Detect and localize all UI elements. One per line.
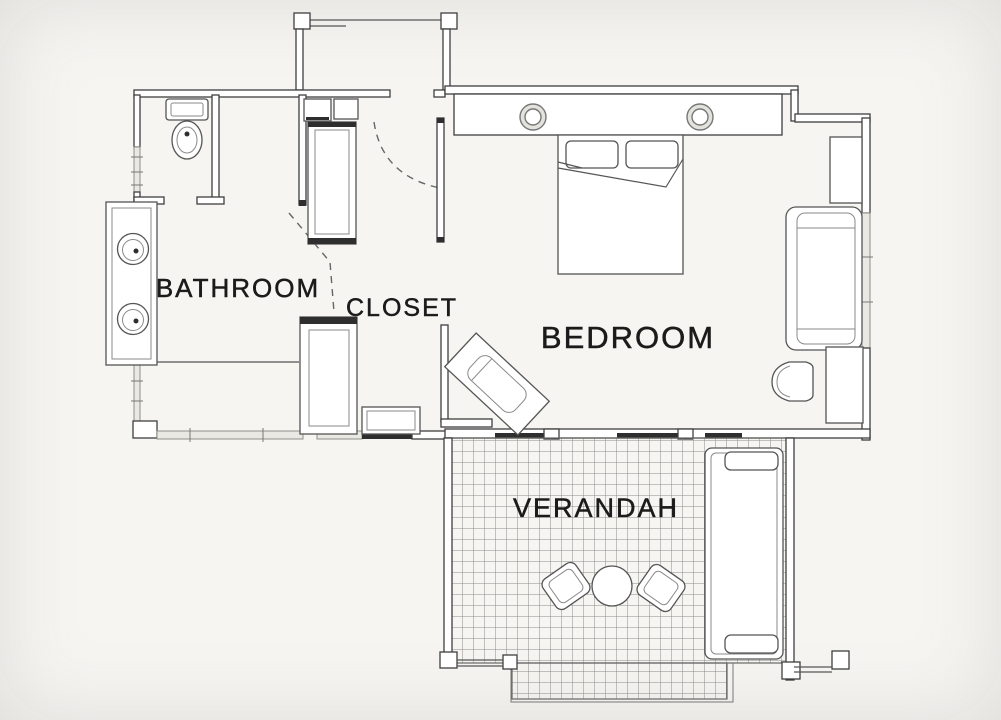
porch-wall (443, 29, 450, 90)
closet-bench (362, 407, 420, 434)
window (157, 431, 303, 439)
verandah-label: VERANDAH (513, 493, 679, 523)
deck-edge (444, 438, 452, 655)
deck-post (440, 652, 457, 668)
deck-post (782, 662, 800, 679)
north-wall-east (795, 114, 870, 122)
sink (118, 234, 149, 265)
window (862, 213, 870, 348)
headboard-sconce (687, 104, 713, 130)
west-wall (134, 95, 140, 147)
west-wall-lower (441, 325, 448, 422)
deck-post (503, 655, 517, 669)
verandah-area (440, 438, 849, 702)
side-table (830, 137, 862, 203)
sink (118, 304, 149, 335)
floor-plan-drawing: BATHROOM CLOSET BEDROOM VERANDAH (0, 0, 1001, 720)
north-wall (445, 86, 798, 94)
vanity (106, 202, 157, 365)
pillow (626, 141, 678, 168)
porch-post (441, 13, 457, 29)
bathroom-fixtures (106, 99, 208, 365)
side-table (826, 347, 863, 423)
sliding-door-panel (705, 433, 742, 438)
west-wall-foot (441, 419, 492, 427)
deck-post (832, 651, 849, 669)
bedroom-label: BEDROOM (541, 320, 715, 355)
north-wall-stub (434, 90, 445, 97)
sliding-door-panel (617, 433, 679, 438)
sofa (786, 207, 862, 350)
deck-step (512, 663, 727, 699)
lower-wardrobe (300, 317, 357, 434)
headboard-shelf (454, 94, 782, 135)
headboard-sconce (520, 104, 546, 130)
porch-post (294, 13, 310, 29)
closet-furniture (300, 99, 420, 434)
entry-porch (294, 13, 457, 90)
wc-wall (197, 197, 224, 204)
lounger-pillow (725, 635, 778, 653)
armchair (772, 362, 813, 401)
east-wall (862, 118, 870, 213)
entry-door-swing (374, 122, 440, 188)
bedroom-furniture (445, 94, 863, 435)
lounger-pillow (725, 452, 778, 470)
floor-plan: BATHROOM CLOSET BEDROOM VERANDAH (0, 0, 1001, 720)
wc-wall (212, 95, 219, 199)
porch-wall (296, 29, 303, 90)
pillow (566, 141, 618, 168)
toilet (166, 99, 208, 159)
bathroom-label: BATHROOM (156, 273, 320, 303)
closet-cabinet (334, 99, 358, 119)
north-wall (134, 90, 390, 97)
window (134, 363, 140, 421)
lounger (705, 448, 783, 659)
corner-post (133, 421, 157, 438)
round-table (592, 566, 632, 606)
double-bed (558, 135, 683, 274)
west-wall-upper (437, 118, 444, 242)
upper-wardrobe (308, 122, 356, 244)
closet-label: CLOSET (346, 294, 458, 322)
railing (786, 438, 794, 680)
